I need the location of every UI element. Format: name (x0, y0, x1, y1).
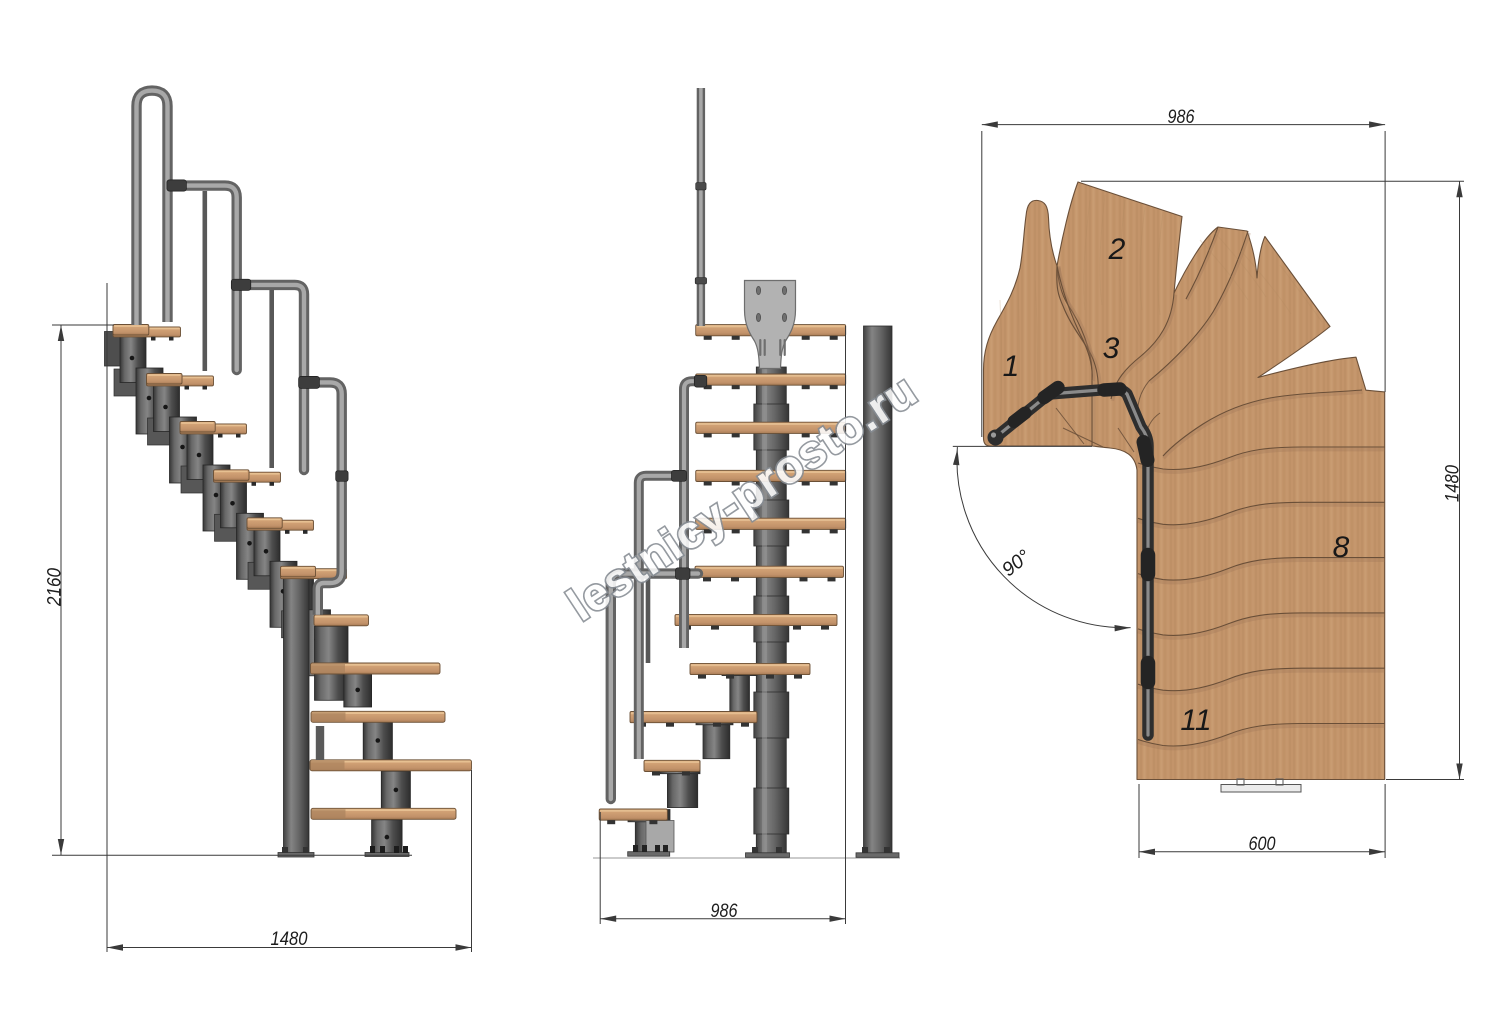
svg-text:1: 1 (1003, 350, 1020, 383)
svg-text:986: 986 (1168, 106, 1195, 128)
svg-text:8: 8 (1333, 531, 1350, 564)
svg-text:2160: 2160 (44, 568, 66, 607)
svg-text:986: 986 (711, 900, 738, 922)
svg-text:2: 2 (1108, 233, 1126, 266)
svg-text:600: 600 (1249, 833, 1276, 855)
svg-text:1480: 1480 (1442, 465, 1464, 502)
svg-text:1480: 1480 (271, 928, 308, 950)
svg-text:11: 11 (1180, 704, 1211, 737)
svg-text:3: 3 (1103, 332, 1120, 365)
